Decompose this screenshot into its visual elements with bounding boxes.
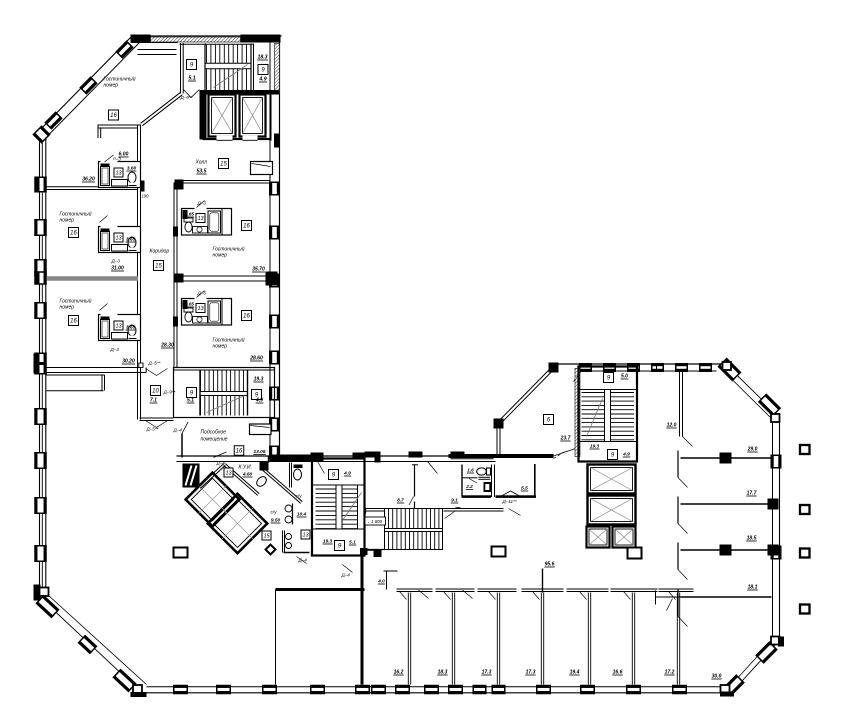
svg-text:Гостиничный: Гостиничный: [213, 246, 245, 253]
svg-text:Гостиничный: Гостиничный: [60, 298, 92, 305]
svg-text:16: 16: [243, 314, 250, 320]
svg-text:номер: номер: [60, 305, 75, 311]
svg-text:13: 13: [197, 306, 204, 312]
svg-text:Д–11**: Д–11**: [502, 499, 517, 504]
svg-text:Д–5: Д–5: [197, 291, 207, 296]
svg-text:3.65: 3.65: [185, 212, 194, 217]
svg-text:Холл: Холл: [195, 160, 208, 166]
svg-text:16: 16: [70, 319, 77, 325]
svg-text:15: 15: [220, 162, 227, 168]
svg-text:Коридор: Коридор: [150, 249, 170, 255]
svg-text:Гостиничный: Гостиничный: [104, 76, 136, 83]
svg-text:10: 10: [152, 389, 159, 395]
svg-text:4.0: 4.0: [377, 579, 385, 584]
svg-text:с/у: с/у: [296, 494, 303, 500]
svg-text:помещение: помещение: [201, 437, 228, 443]
svg-text:1.6: 1.6: [467, 468, 474, 473]
svg-text:Д–5**: Д–5**: [148, 361, 161, 366]
svg-text:Д–4: Д–4: [216, 461, 226, 466]
svg-text:16: 16: [70, 231, 77, 237]
svg-text:номер: номер: [213, 344, 228, 350]
svg-text:К.У.И.: К.У.И.: [239, 465, 253, 471]
svg-text:190: 190: [142, 194, 150, 199]
svg-text:Д–4: Д–4: [298, 558, 308, 563]
svg-text:15: 15: [155, 264, 162, 270]
svg-text:номер: номер: [60, 218, 75, 224]
svg-text:Подсобное: Подсобное: [201, 430, 227, 436]
svg-text:15: 15: [263, 533, 270, 539]
svg-text:13: 13: [115, 170, 122, 176]
svg-text:Д–4: Д–4: [341, 573, 351, 578]
svg-text:Д–3: Д–3: [197, 201, 207, 206]
svg-text:3.65: 3.65: [185, 302, 194, 307]
svg-text:13: 13: [115, 323, 122, 329]
svg-text:Гостиничный: Гостиничный: [213, 337, 245, 344]
svg-text:Д–4: Д–4: [173, 428, 183, 433]
svg-text:16: 16: [110, 113, 117, 119]
svg-text:Д–3: Д–3: [110, 347, 120, 352]
svg-text:16: 16: [243, 224, 250, 230]
svg-text:Д–3: Д–3: [111, 259, 121, 264]
svg-text:Д–5**: Д–5**: [146, 427, 159, 432]
svg-text:13: 13: [302, 532, 309, 538]
svg-text:16: 16: [236, 449, 243, 455]
svg-text:номер: номер: [213, 253, 228, 259]
svg-text:2.2: 2.2: [465, 484, 473, 489]
svg-text:13: 13: [197, 216, 204, 222]
svg-text:с/у: с/у: [271, 510, 278, 516]
svg-text:13: 13: [225, 470, 232, 476]
svg-text:Д–9**: Д–9**: [163, 390, 176, 395]
svg-text:←1.800: ←1.800: [367, 519, 383, 524]
svg-text:номер: номер: [104, 83, 119, 89]
svg-text:13: 13: [115, 235, 122, 241]
svg-text:Гостиничный: Гостиничный: [60, 211, 92, 218]
